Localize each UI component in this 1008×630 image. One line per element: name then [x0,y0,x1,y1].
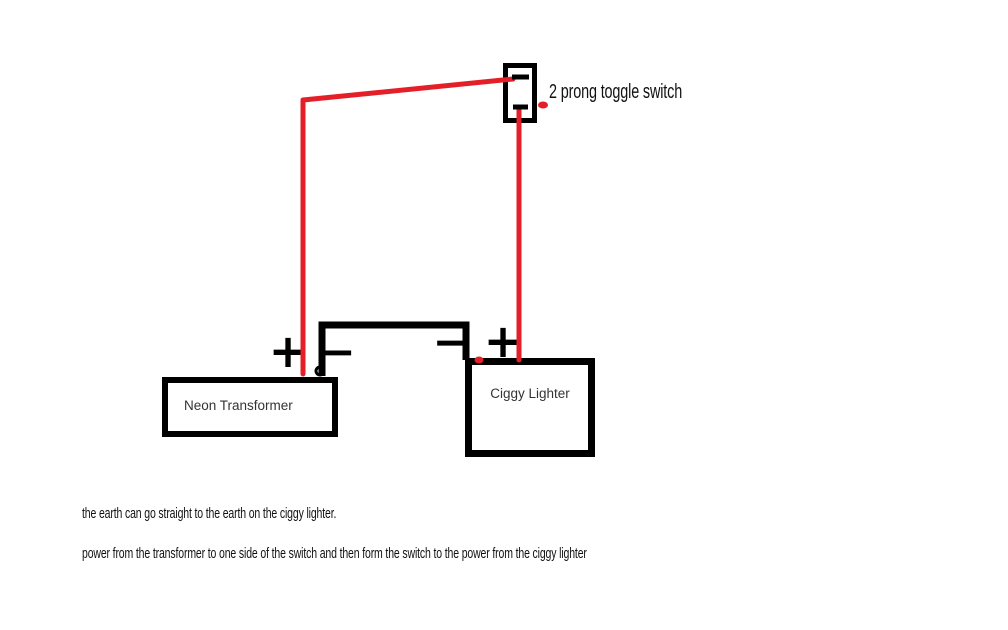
ciggy-plus-terminal-mark: + [479,317,527,365]
paint-diagram-canvas: Neon Transformer Ciggy Lighter 2 prong t… [0,0,1008,630]
ciggy-lighter-box [465,358,595,457]
transformer-minus-terminal-mark: − [314,327,362,375]
toggle-switch-caption: 2 prong toggle switch [549,82,682,103]
note-earth-wiring: the earth can go straight to the earth o… [82,506,336,522]
ciggy-lighter-label: Ciggy Lighter [467,386,593,401]
note-power-wiring: power from the transformer to one side o… [82,546,587,562]
ciggy-minus-terminal-mark: − [427,318,475,366]
neon-transformer-label: Neon Transformer [184,398,293,413]
transformer-plus-terminal-mark: + [264,327,312,375]
red-dot-switch-marker [538,102,548,109]
toggle-switch-box [503,63,537,123]
